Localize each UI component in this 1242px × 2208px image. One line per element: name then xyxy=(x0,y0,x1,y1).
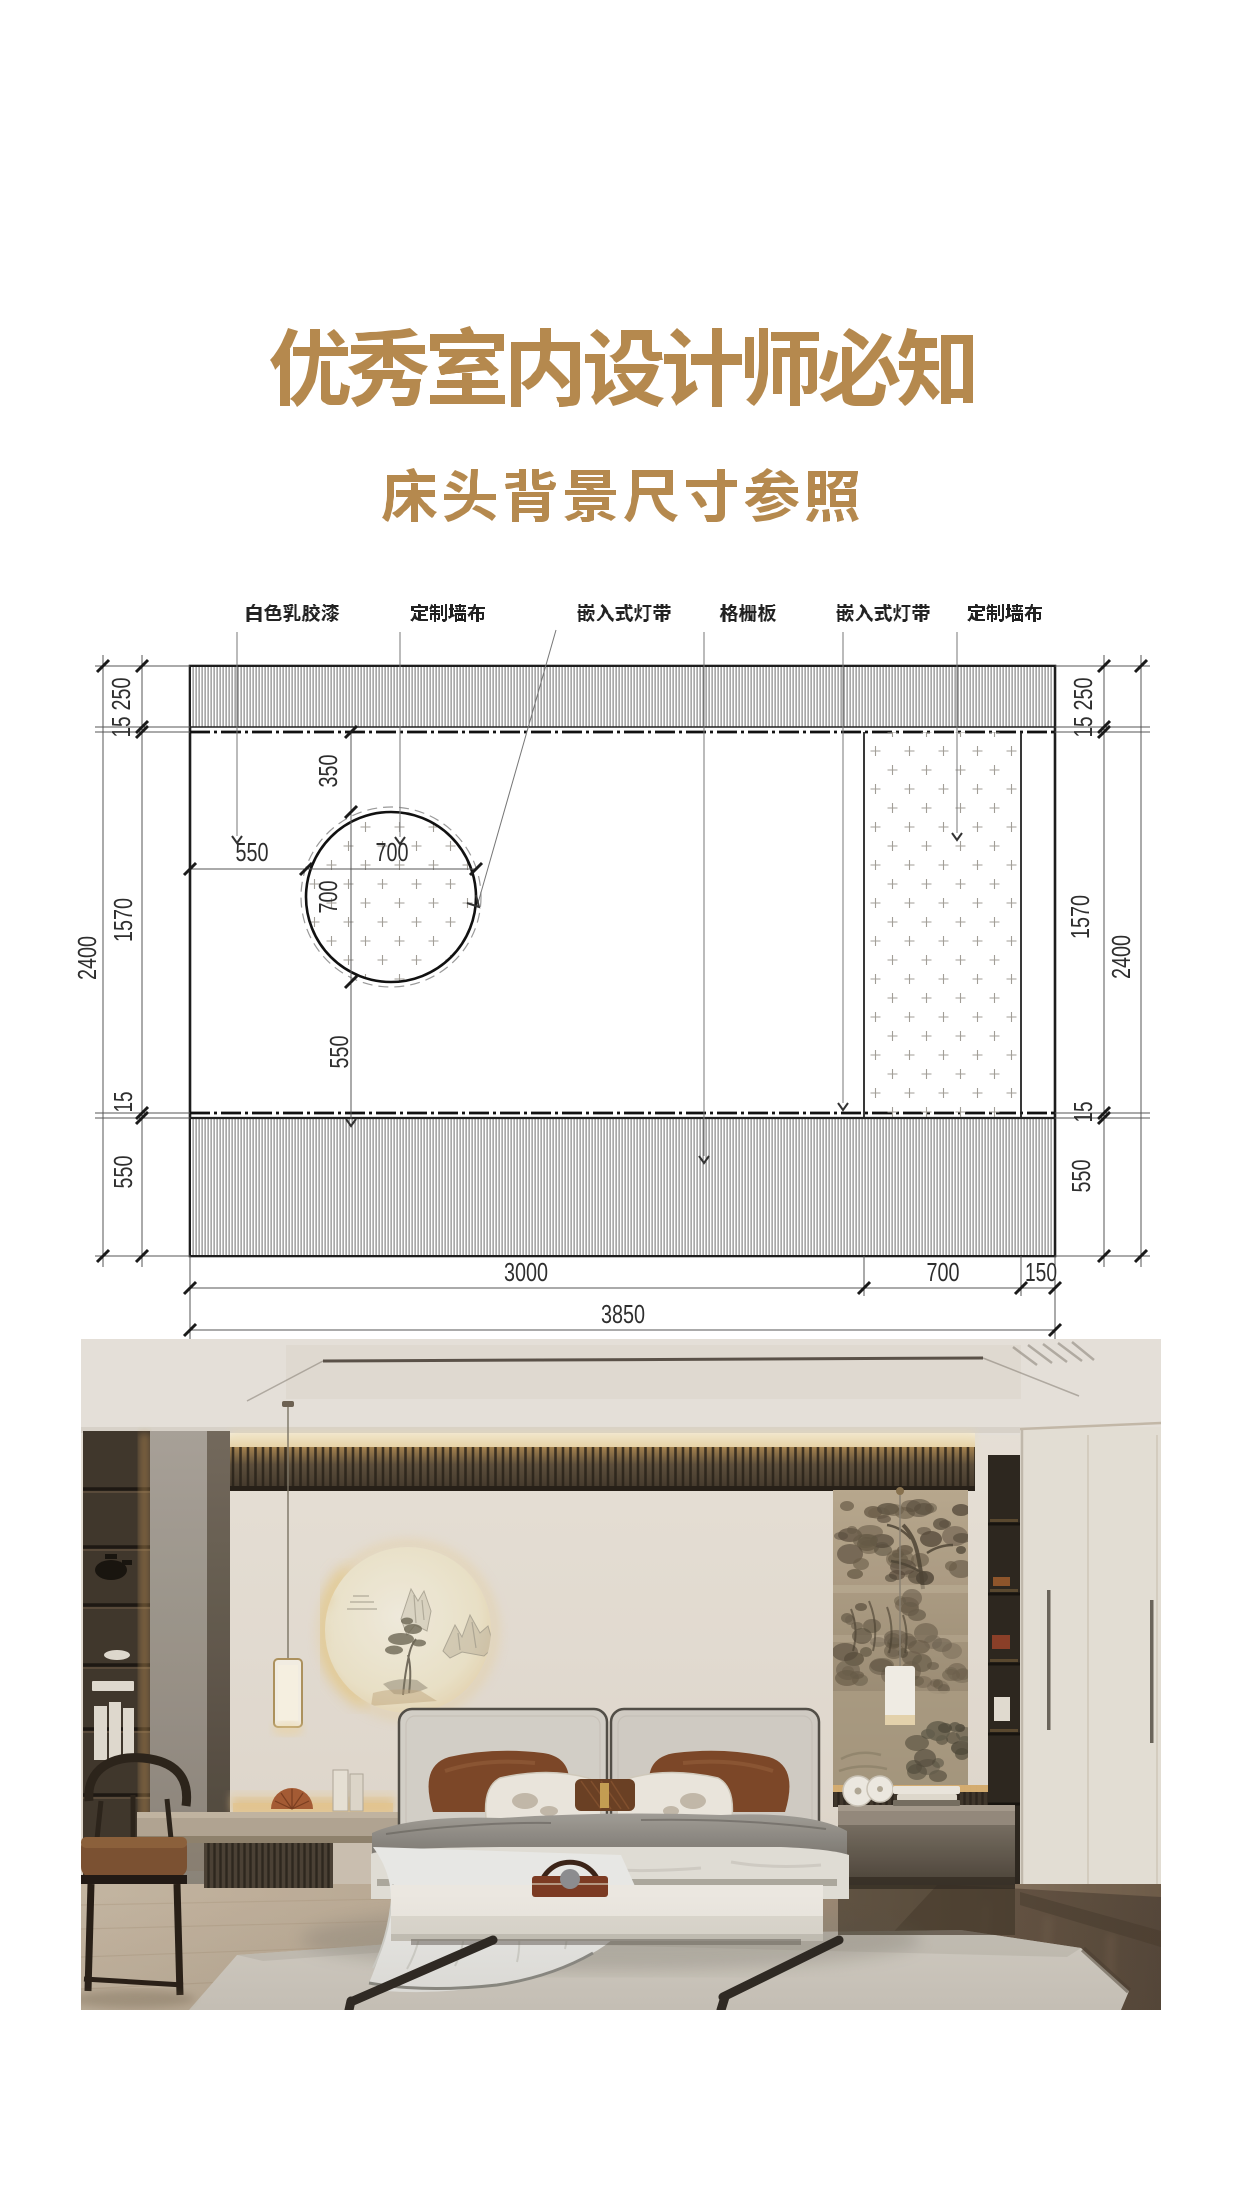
svg-text:700: 700 xyxy=(376,837,409,867)
svg-text:550: 550 xyxy=(324,1036,354,1069)
svg-text:700: 700 xyxy=(927,1257,960,1287)
svg-text:2400: 2400 xyxy=(72,936,102,980)
svg-text:2400: 2400 xyxy=(1106,935,1136,979)
svg-text:3850: 3850 xyxy=(601,1299,645,1329)
svg-text:1570: 1570 xyxy=(108,898,138,942)
svg-text:1570: 1570 xyxy=(1065,895,1095,939)
svg-text:350: 350 xyxy=(313,755,343,788)
svg-text:550: 550 xyxy=(236,837,269,867)
svg-text:15: 15 xyxy=(106,717,136,738)
svg-text:15: 15 xyxy=(1068,717,1098,738)
svg-text:700: 700 xyxy=(313,881,343,914)
svg-text:15: 15 xyxy=(1068,1102,1098,1123)
svg-text:550: 550 xyxy=(1066,1160,1096,1193)
svg-text:550: 550 xyxy=(108,1156,138,1189)
svg-text:15: 15 xyxy=(108,1092,138,1113)
svg-text:150: 150 xyxy=(1025,1257,1057,1287)
svg-text:250: 250 xyxy=(106,678,136,711)
svg-text:3000: 3000 xyxy=(504,1257,548,1287)
svg-text:250: 250 xyxy=(1068,678,1098,711)
